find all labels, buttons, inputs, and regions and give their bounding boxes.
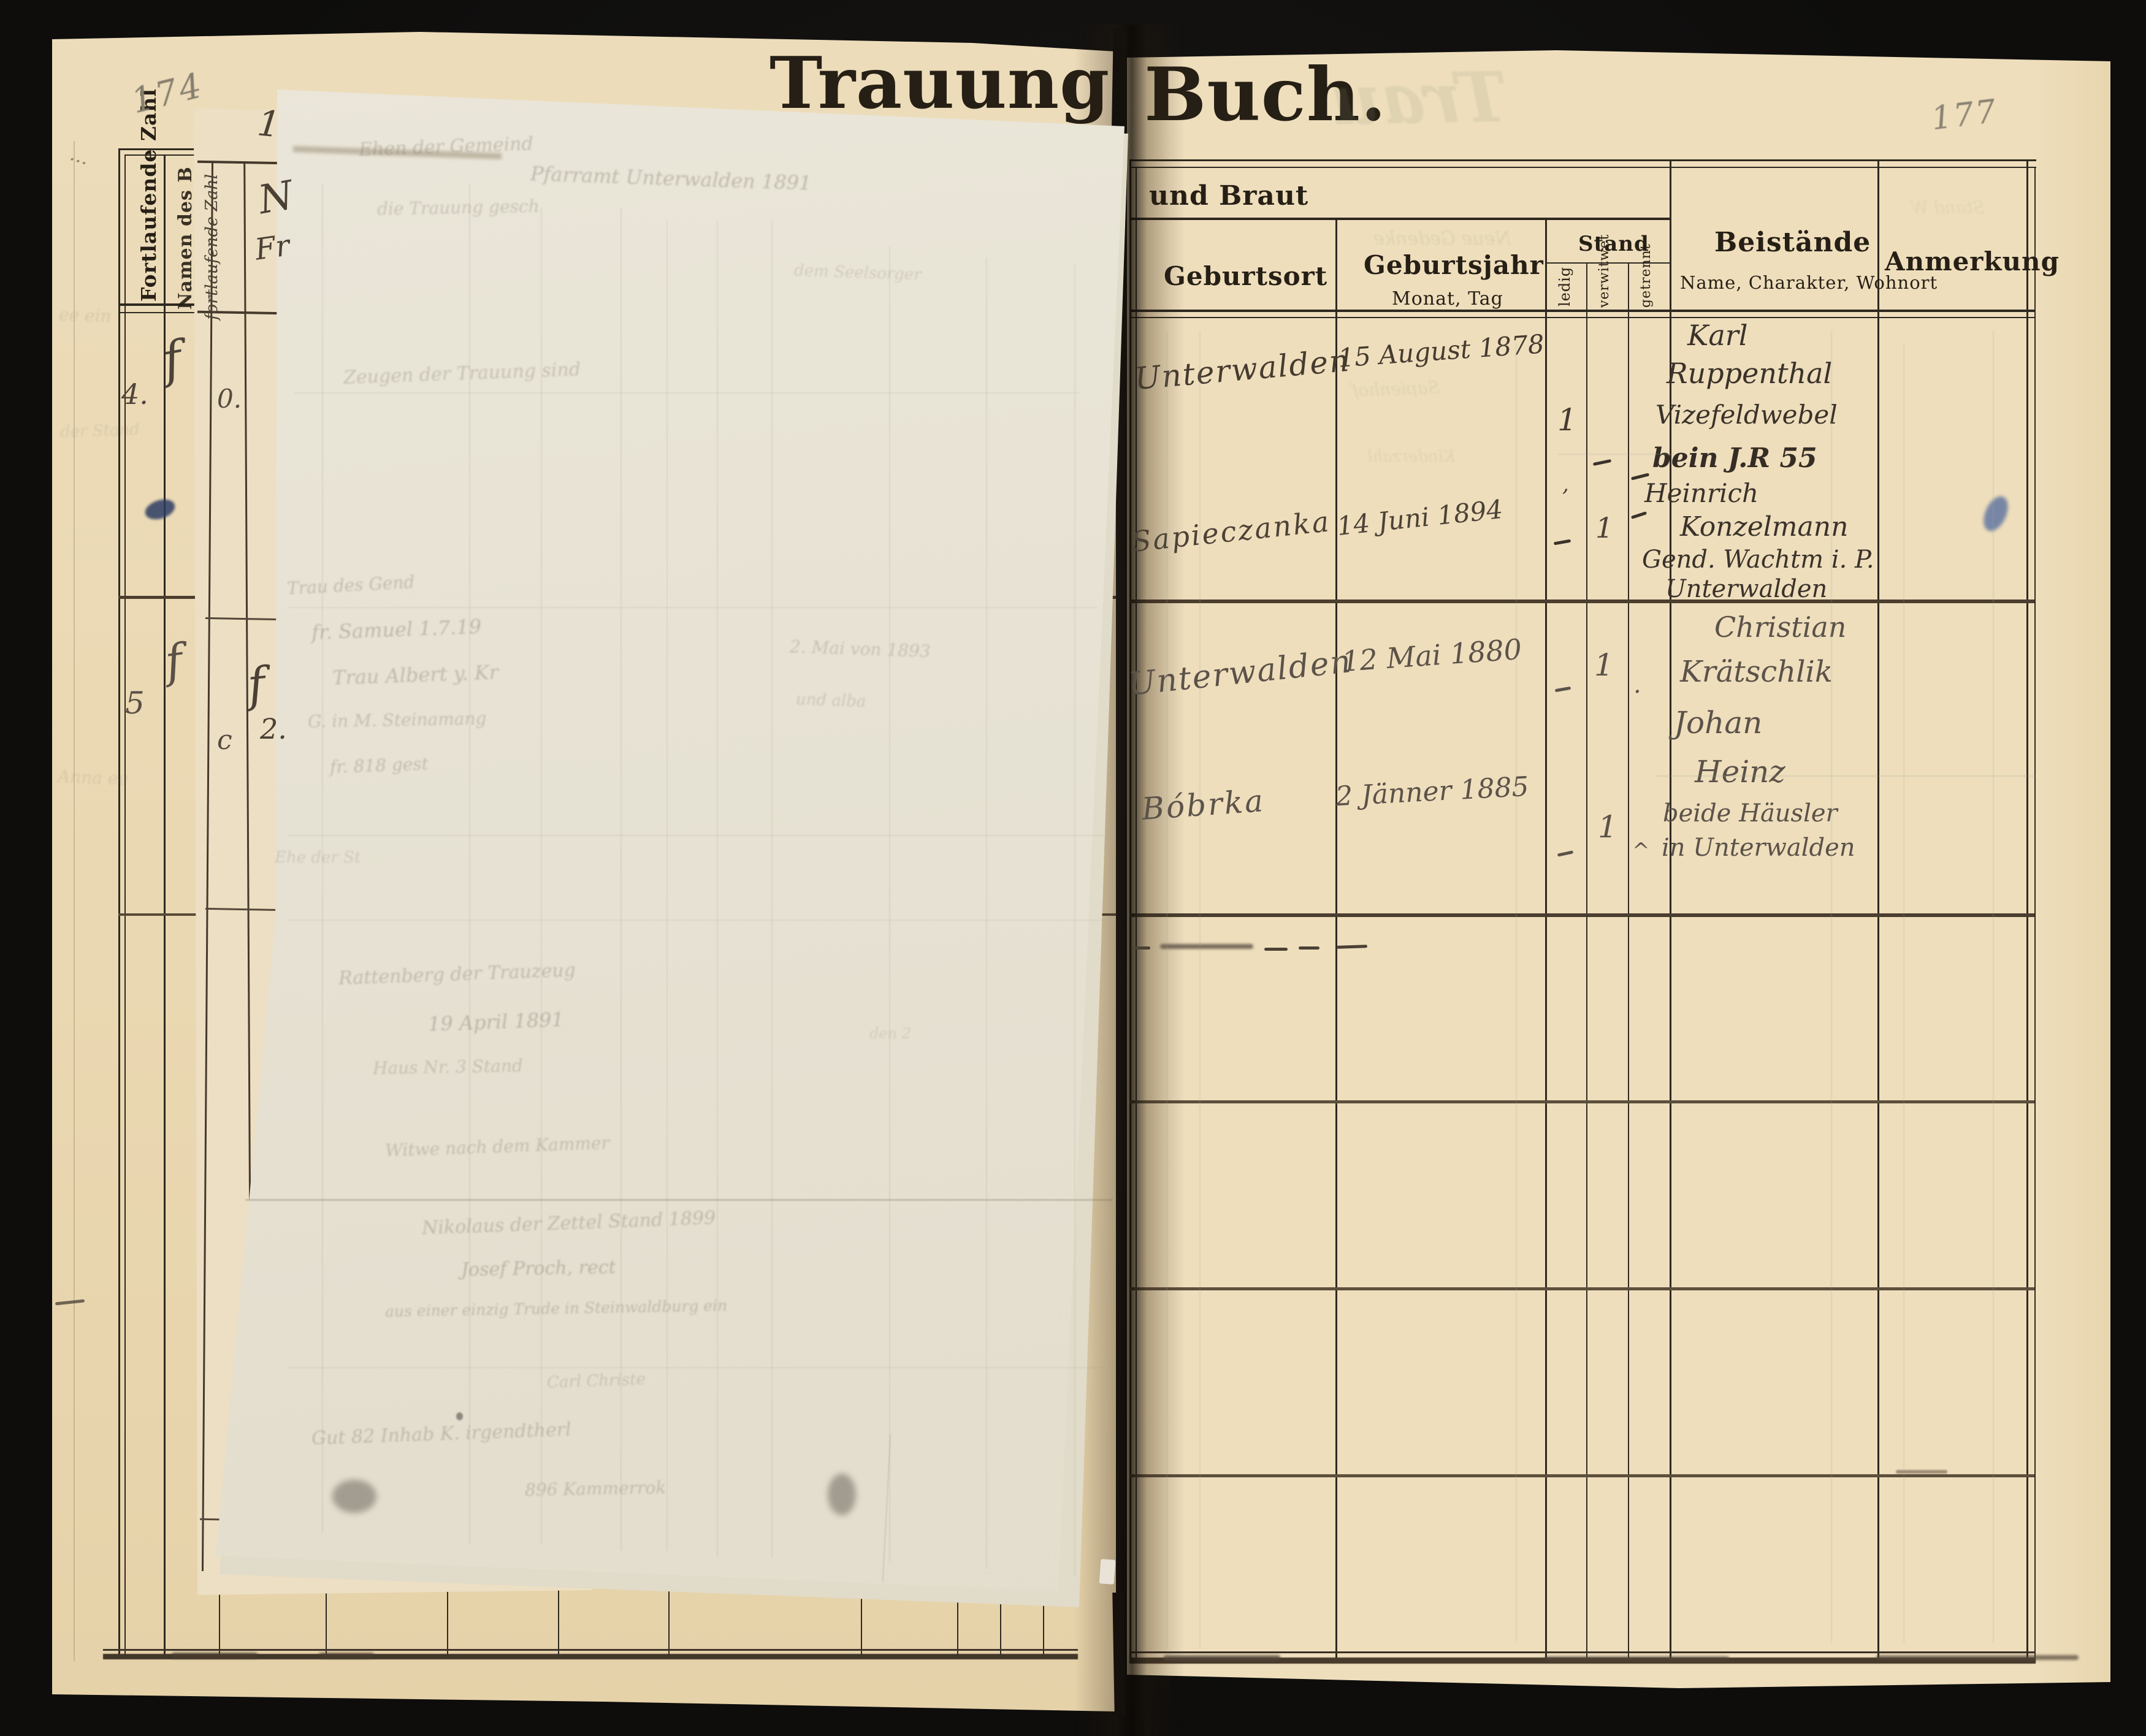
bottom-rule	[103, 1649, 1078, 1651]
col-header-geburtsort: Geburtsort	[1164, 261, 1327, 291]
row-rule	[1129, 600, 2034, 603]
fold-line	[74, 141, 75, 1661]
col-header-beistaende: Beistände	[1714, 227, 1871, 258]
col-header-anmerkung: Anmerkung	[1885, 246, 2060, 276]
col-header-verwitwet: verwitwet	[1597, 234, 1612, 308]
col-header-partial: Namen des B	[175, 166, 196, 310]
row-rule	[1129, 1100, 2034, 1103]
col-header-ledig: ledig	[1556, 267, 1573, 306]
col-header-geburtsjahr-sub: Monat, Tag	[1392, 288, 1503, 310]
table-border	[118, 148, 120, 1656]
bottom-rule	[1129, 1651, 2036, 1653]
table-border	[1129, 159, 2036, 161]
bottom-rule	[103, 1654, 1078, 1659]
row-rule	[1129, 1287, 2034, 1290]
col-line	[1877, 159, 1879, 1662]
col-line	[1335, 218, 1337, 1662]
col-header-getrennt: getrennt	[1638, 243, 1654, 308]
col-line	[1545, 218, 1547, 1662]
row-rule	[1129, 913, 2034, 917]
span-header-und-braut: und Braut	[1149, 180, 1308, 211]
col-header-geburtsjahr: Geburtsjahr	[1364, 250, 1544, 280]
col-header-fortlaufende-zahl: Fortlaufende Zahl	[137, 88, 161, 302]
page-title-right: Buch.	[1144, 51, 1387, 138]
table-border	[1129, 159, 1131, 1662]
header-rule	[1129, 317, 2034, 318]
col-line	[1586, 264, 1587, 1662]
table-border	[1129, 167, 2036, 168]
table-border	[124, 154, 126, 1655]
col-line	[1628, 264, 1629, 1662]
book-page-right: Buch. und Braut Geburtsort Geburtsjahr M…	[1127, 50, 2110, 1690]
span-header-rule	[1129, 218, 1670, 220]
table-border	[2034, 167, 2036, 1662]
bottom-rule	[1129, 1658, 2036, 1664]
table-border	[2026, 159, 2028, 1662]
col-line	[1670, 159, 1671, 1662]
scanned-register-spread: Trauungs= Fortlaufende Zahl Namen des B …	[0, 0, 2146, 1736]
col-line	[164, 154, 166, 1655]
row-rule	[1129, 1474, 2034, 1477]
gutter-slit	[1112, 1593, 1125, 1715]
header-rule	[1129, 310, 2034, 312]
